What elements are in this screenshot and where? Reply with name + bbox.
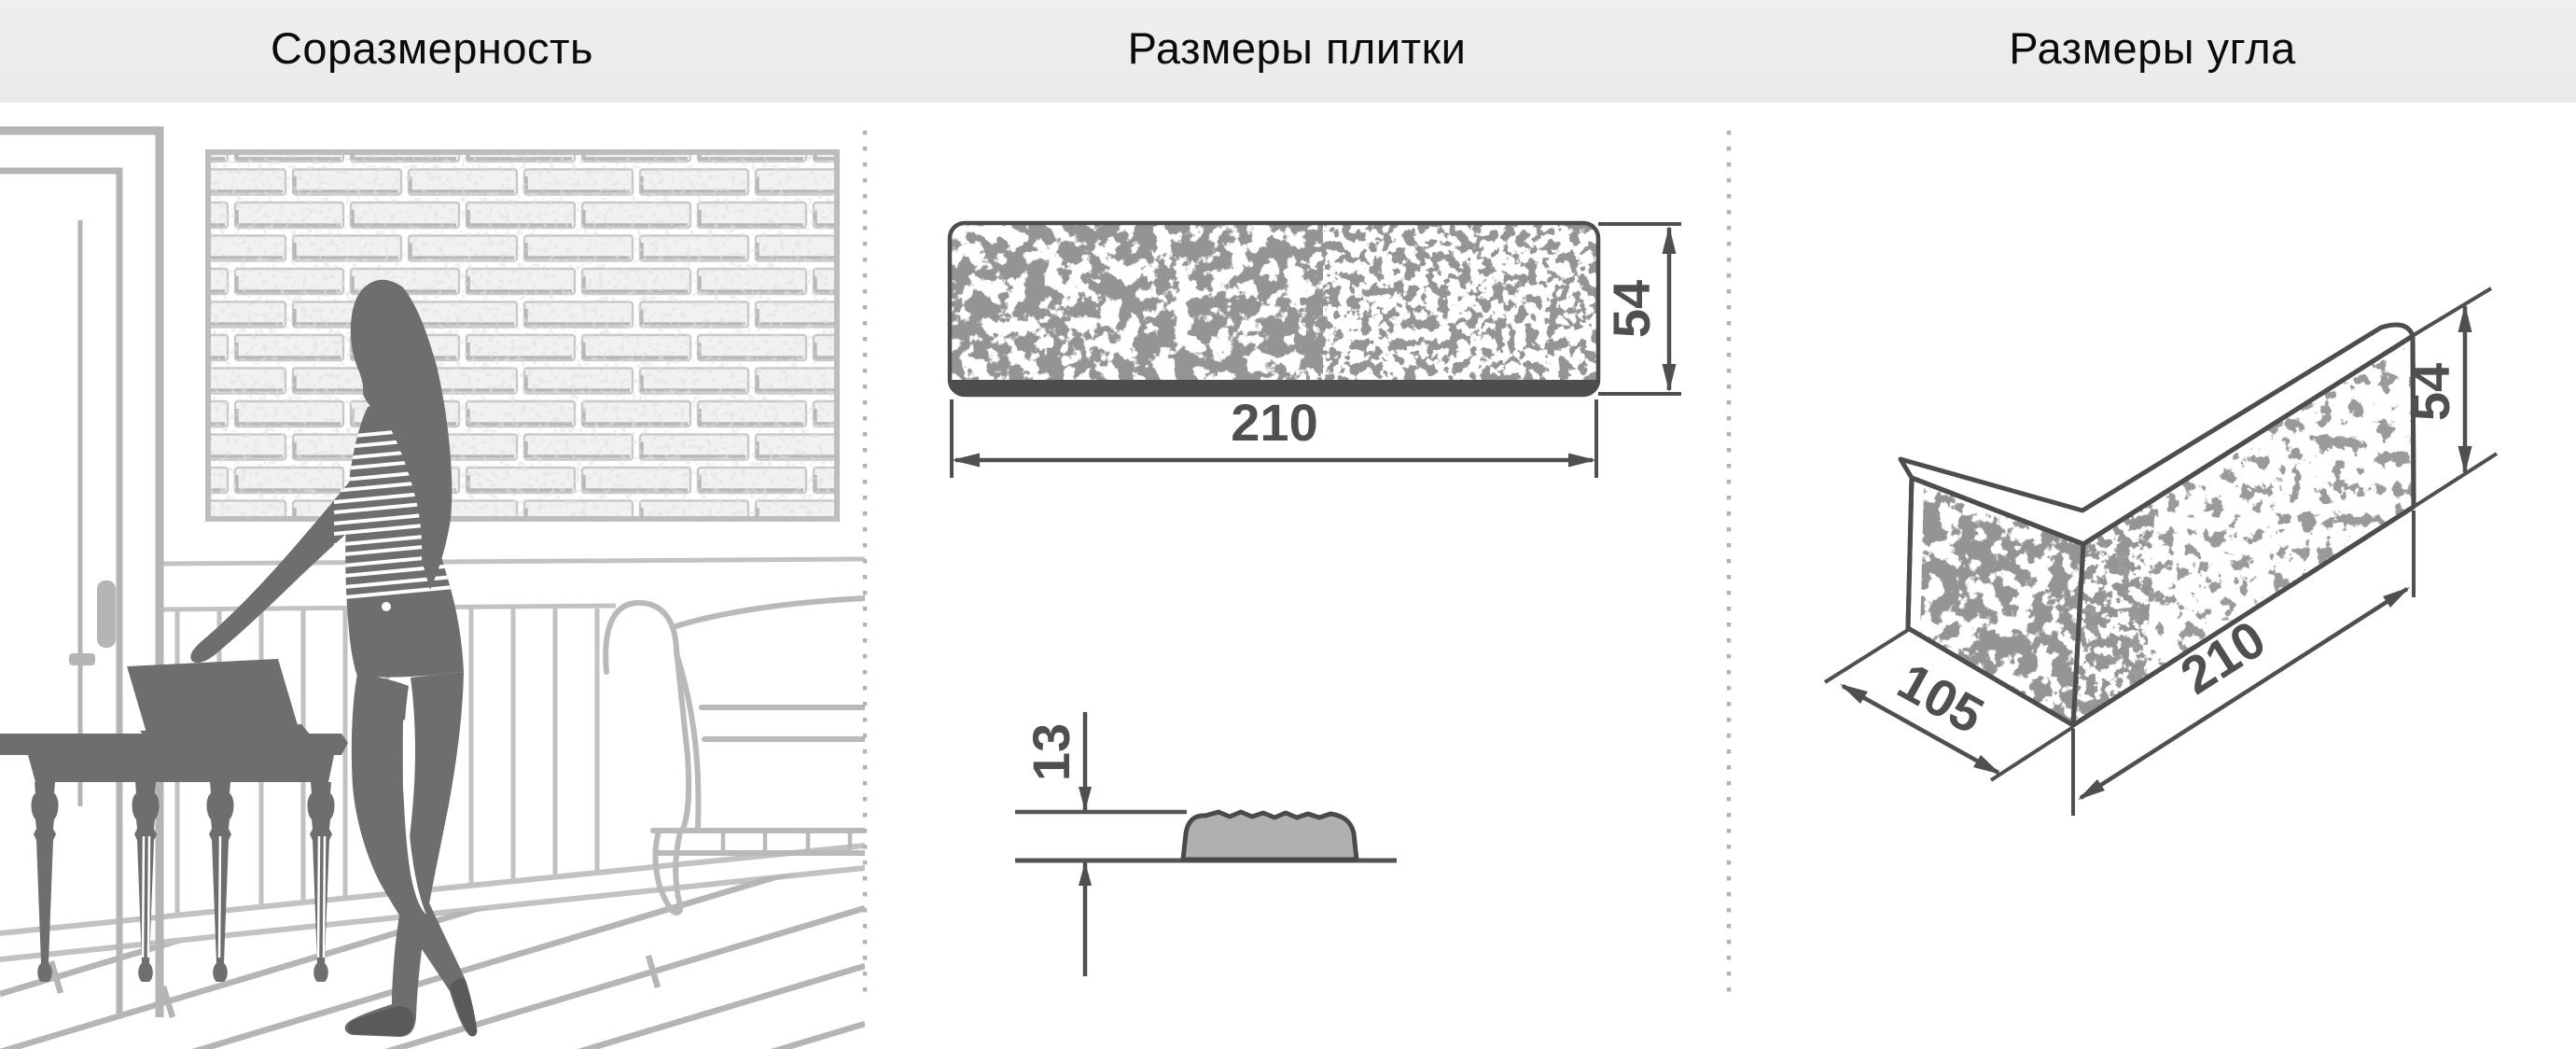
corner-dimensions-diagram: 105 210 54 [1825, 288, 2497, 816]
tile-thickness-dimension [1079, 712, 1092, 976]
tile-dimensions-diagram: 54 210 13 [950, 223, 1681, 976]
laptop [127, 659, 320, 754]
corner-piece [1901, 325, 2414, 725]
door-handle [97, 580, 116, 648]
door-handle-plate [69, 653, 95, 665]
door [0, 131, 160, 1017]
scene-proportionality [0, 131, 865, 1049]
corner-height-label: 54 [2402, 363, 2460, 421]
tile-profile-shape [1183, 812, 1357, 860]
tile-thickness-label: 13 [1022, 723, 1080, 781]
tile-height-label: 54 [1602, 280, 1661, 338]
tile-width-label: 210 [1231, 393, 1317, 452]
sofa-leg [655, 831, 680, 913]
laptop-screen [127, 659, 298, 733]
infographic-canvas: Соразмерность Размеры плитки Размеры угл… [0, 0, 2576, 1049]
brick-wall [208, 152, 837, 519]
tile-face [950, 223, 1598, 395]
tile-profile [1015, 812, 1397, 860]
jeans-button [382, 602, 391, 611]
diagram-artwork: 54 210 13 [0, 0, 2576, 1049]
